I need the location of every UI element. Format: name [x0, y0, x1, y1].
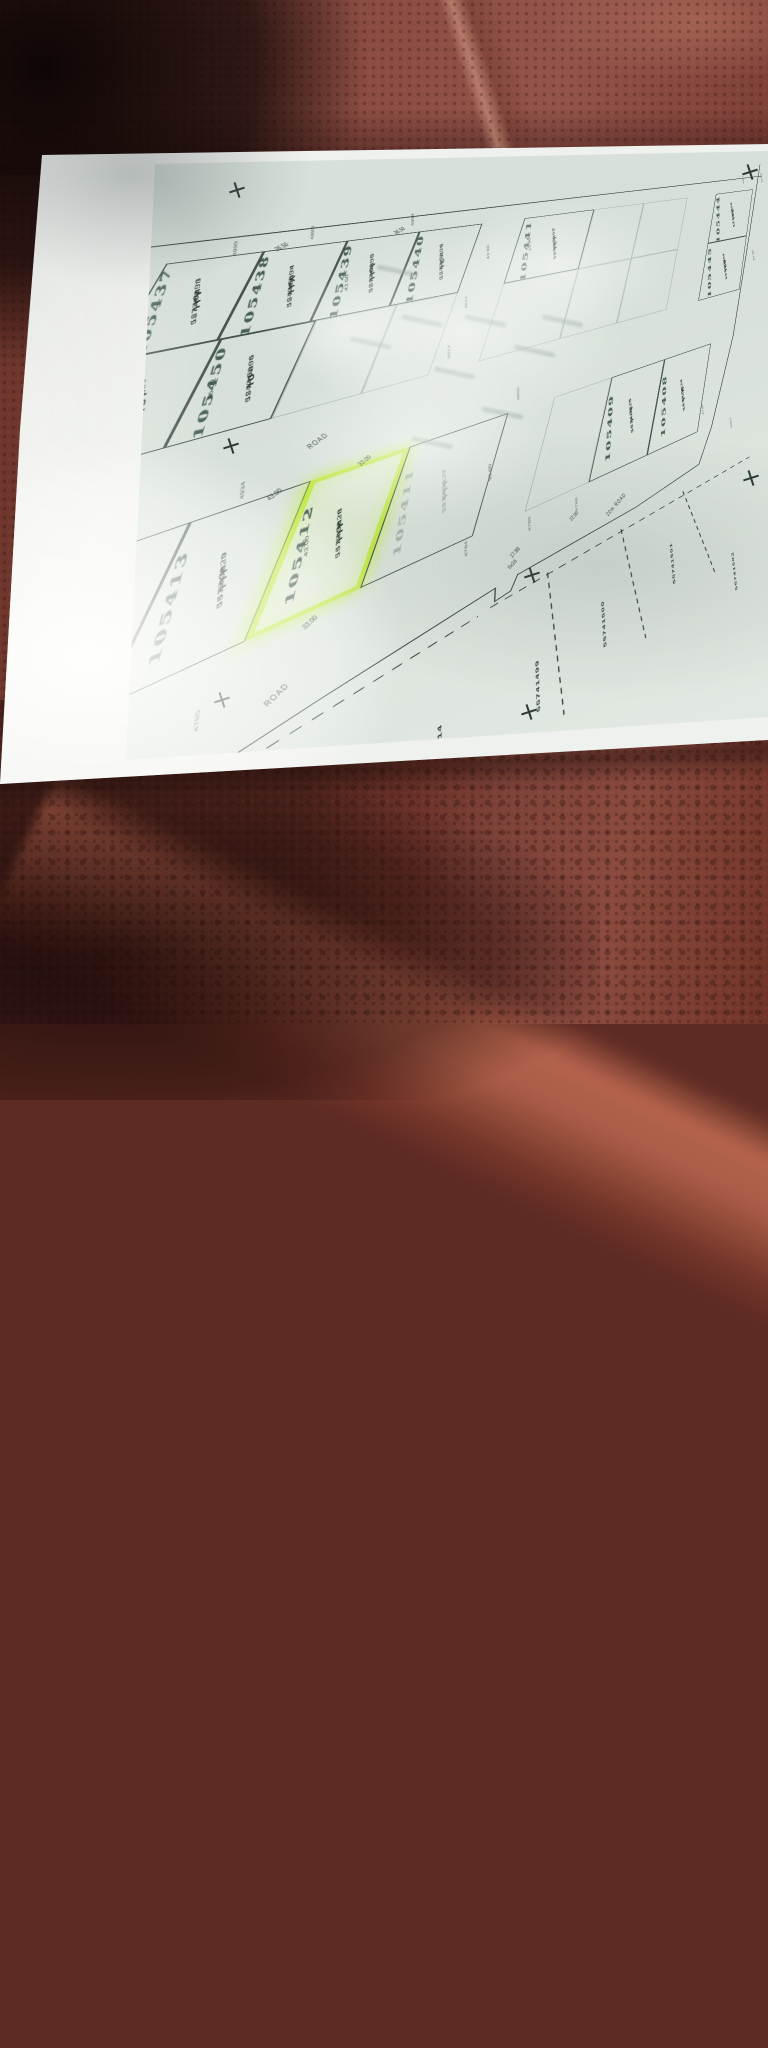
- plot-number-stamp: 105451: [65, 368, 118, 476]
- survey-cross-icon: [519, 702, 539, 722]
- glare-toner-smudge: [513, 344, 555, 358]
- edge-dimension-label: 22.00: [98, 467, 123, 484]
- edge-dimension-label: 35.50: [59, 422, 71, 448]
- seat-shadow-bottom-left: [0, 780, 600, 1100]
- glare-toner-smudge: [433, 366, 475, 380]
- photo-scene: 1273 Sq m55740853١٣٧1054371240 Sq m55740…: [0, 0, 768, 1024]
- survey-cross-icon: [221, 436, 241, 456]
- survey-cross-icon: [740, 162, 760, 182]
- survey-cross-icon: [227, 180, 247, 200]
- glare-toner-smudge: [541, 314, 583, 328]
- parcel-id: 55740830: [66, 603, 86, 674]
- survey-point-number: 4933: [129, 511, 139, 534]
- survey-cross-icon: [522, 565, 542, 585]
- glare-toner-smudge: [349, 336, 391, 350]
- survey-cross-icon: [741, 468, 761, 488]
- parcel-number-arabic: ١١٤: [69, 619, 88, 656]
- glare-toner-smudge: [401, 314, 443, 328]
- glare-toner-smudge: [411, 436, 453, 450]
- glare-toner-smudge: [376, 264, 418, 278]
- glare-toner-smudge: [481, 406, 523, 420]
- edge-dimension-label: 8x8: [81, 492, 101, 506]
- survey-cross-icon: [212, 690, 232, 710]
- glare-toner-smudge: [464, 314, 506, 328]
